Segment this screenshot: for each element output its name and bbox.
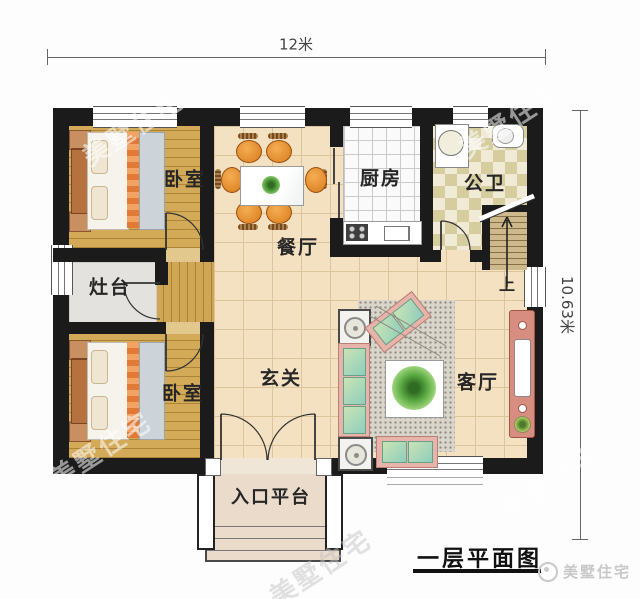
floor-plan-canvas: 12米 10.63米 (0, 0, 640, 599)
dimension-tick (572, 539, 588, 540)
tv-stand-knob (518, 404, 527, 413)
bed-blanket-stripe (127, 342, 139, 438)
label-dining: 餐厅 (277, 233, 319, 260)
wall-segment (53, 458, 205, 474)
bed-pillow (91, 350, 108, 384)
bed (69, 130, 163, 230)
wall-segment (482, 215, 490, 270)
top-dimension-label: 12米 (279, 34, 313, 55)
wall-segment (204, 248, 214, 262)
table-plant (262, 176, 280, 194)
dining-chair (305, 167, 327, 193)
label-entrance: 入口平台 (231, 483, 311, 509)
bed-blanket-stripe (127, 132, 139, 228)
brand-logo-text: 美墅住宅 (563, 561, 631, 582)
window (93, 106, 177, 128)
dining-chair (238, 224, 258, 230)
sofa-left (338, 343, 370, 437)
table-lamp (344, 317, 366, 339)
label-bedroom-top: 卧室 (164, 165, 206, 192)
bed-pillow (91, 140, 108, 174)
wall-segment (470, 250, 482, 262)
label-stairs-up: 上 (499, 271, 517, 295)
window (350, 106, 412, 128)
tv-stand-plant (514, 416, 531, 433)
entrance-pillar (325, 474, 343, 550)
wall-segment (53, 248, 166, 262)
wall-segment (53, 108, 69, 245)
tv-screen (514, 339, 531, 397)
window-sill (387, 477, 483, 485)
label-bathroom: 公卫 (464, 169, 506, 196)
right-dimension-line (580, 110, 581, 540)
door-frame-post (316, 458, 332, 476)
stove-cooktop (346, 224, 368, 241)
sofa-cushion (408, 441, 433, 463)
entrance-threshold (219, 458, 316, 474)
wall-segment (330, 243, 430, 257)
table-lamp (345, 444, 367, 466)
dining-chair (238, 133, 258, 139)
dimension-tick (47, 49, 48, 65)
brand-logo-icon-dot (544, 567, 549, 572)
dining-chair (236, 140, 262, 163)
sofa-bottom (376, 436, 438, 468)
door-threshold (166, 322, 204, 334)
sofa-side-table (338, 437, 373, 471)
door-frame-post (205, 458, 221, 476)
wall-segment (305, 108, 350, 126)
top-dimension-line (48, 57, 545, 58)
wall-segment (420, 250, 441, 262)
label-foyer: 玄关 (260, 364, 302, 391)
door-threshold (166, 248, 204, 262)
label-kitchen: 厨房 (360, 164, 402, 191)
bed-duvet (139, 132, 165, 230)
right-dimension-label: 10.63米 (557, 276, 578, 346)
tv-stand (509, 310, 535, 438)
plan-title-underline (413, 569, 541, 573)
sofa-cushion (382, 441, 407, 463)
sofa-cushion (343, 406, 366, 434)
brand-logo-icon (538, 562, 558, 582)
wall-segment (155, 262, 168, 285)
dining-chair (266, 140, 292, 163)
window (240, 106, 305, 128)
wall-segment (330, 126, 343, 147)
kitchen-sink (384, 226, 410, 241)
entrance-pillar (197, 474, 215, 550)
platform-step (207, 538, 339, 539)
wall-segment (53, 322, 166, 334)
brand-logo: 美墅住宅 (538, 561, 631, 582)
wall-segment (177, 108, 240, 126)
wall-segment (200, 126, 214, 262)
coffee-table-plant (392, 366, 436, 410)
dimension-tick (545, 49, 546, 65)
bed-pillow (91, 186, 108, 220)
window (524, 267, 546, 307)
label-living: 客厅 (457, 368, 499, 395)
dimension-tick (572, 110, 588, 111)
bed (69, 340, 163, 440)
platform-step (207, 550, 339, 551)
bed-pillow (91, 396, 108, 430)
sofa-cushion (343, 377, 366, 405)
label-stove: 灶台 (89, 273, 131, 300)
platform-step (207, 526, 339, 527)
bathroom-sink-basin (438, 130, 464, 156)
tv-stand-knob (518, 321, 527, 330)
dining-chair (268, 224, 288, 230)
label-bedroom-bottom: 卧室 (162, 379, 204, 406)
sofa-cushion (343, 348, 366, 376)
toilet-bowl (497, 128, 514, 144)
wall-segment (527, 108, 543, 267)
wall-segment (483, 458, 543, 474)
staircase (490, 212, 527, 270)
dining-chair (268, 133, 288, 139)
